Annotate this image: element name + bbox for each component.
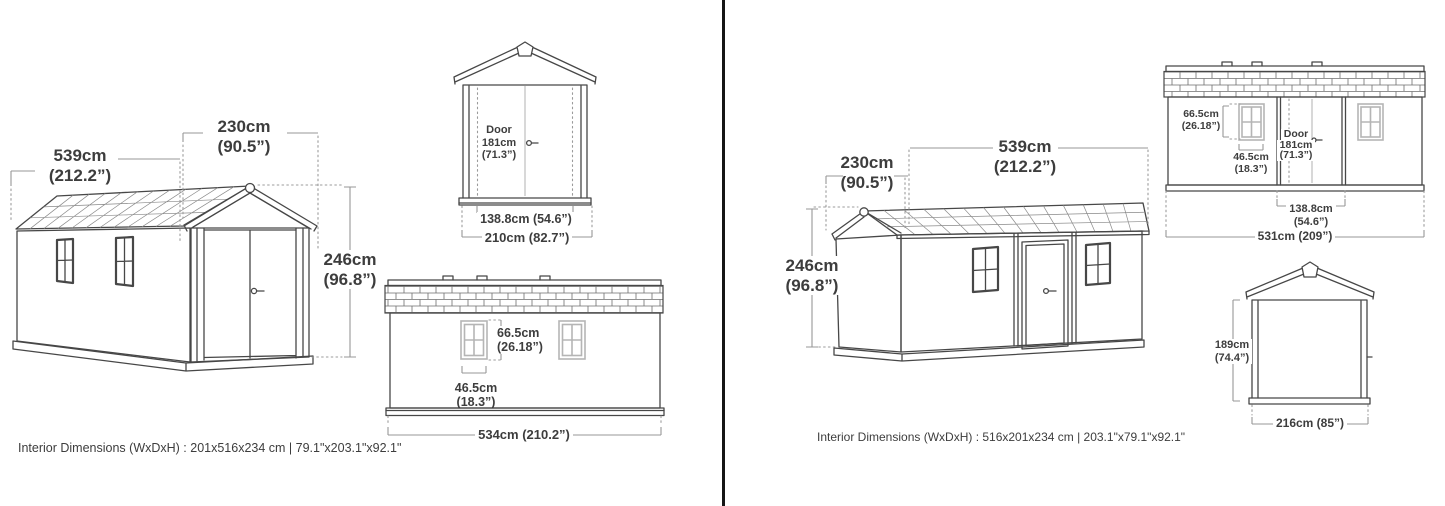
front-width-label: 216cm (85”) [1255,417,1365,431]
side-length-label: 531cm (209”) [1235,230,1355,244]
window-width-label: 46.5cm (18.3”) [1228,151,1274,176]
panel-divider [722,0,725,506]
front-height-label: 189cm (74.4”) [1204,339,1260,364]
dim-height-label: 246cm (96.8”) [768,256,856,295]
shed-dimension-spec-sheet: 539cm (212.2”) 230cm (90.5”) 246cm (96.8… [0,0,1445,506]
window-height-label: 66.5cm (26.18”) [1178,108,1224,133]
dim-width-label: 230cm (90.5”) [817,153,917,192]
door-width-label: 138.8cm (54.6”) [1276,203,1346,228]
interior-dimensions-text: Interior Dimensions (WxDxH) : 516x201x23… [817,430,1185,444]
dim-length-label: 539cm (212.2”) [975,137,1075,176]
door-height-label: Door 181cm (71.3”) [1271,129,1321,161]
